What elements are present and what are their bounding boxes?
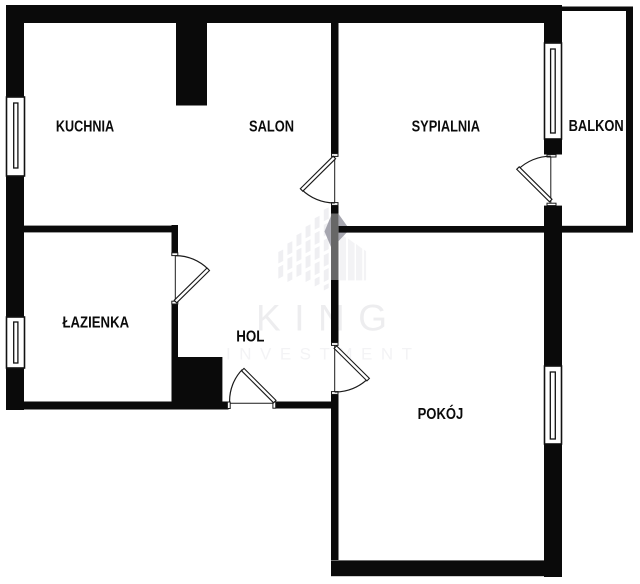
svg-text:KING: KING bbox=[256, 298, 387, 339]
svg-text:POKÓJ: POKÓJ bbox=[418, 404, 464, 423]
svg-text:BALKON: BALKON bbox=[569, 118, 624, 135]
svg-text:SYPIALNIA: SYPIALNIA bbox=[412, 118, 481, 135]
svg-text:HOL: HOL bbox=[236, 328, 264, 345]
svg-text:ŁAZIENKA: ŁAZIENKA bbox=[63, 315, 130, 332]
svg-text:SALON: SALON bbox=[249, 118, 294, 135]
svg-text:KUCHNIA: KUCHNIA bbox=[56, 118, 115, 135]
